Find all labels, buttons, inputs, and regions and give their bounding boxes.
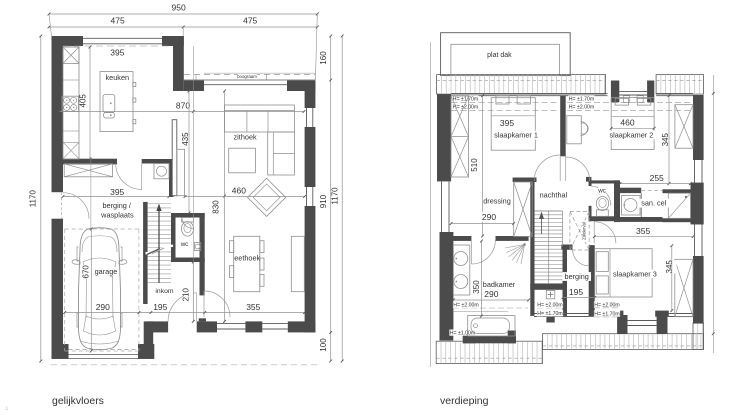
svg-text:475: 475	[111, 16, 125, 26]
svg-text:160: 160	[319, 51, 328, 65]
svg-text:H= ±1.70m: H= ±1.70m	[569, 96, 594, 102]
svg-text:435: 435	[181, 132, 190, 146]
svg-text:H= ±2.00m: H= ±2.00m	[594, 302, 619, 308]
svg-text:1170: 1170	[331, 187, 340, 205]
svg-text:gelijkvloers: gelijkvloers	[52, 395, 104, 407]
svg-text:H= ±1.00m: H= ±1.00m	[450, 330, 475, 336]
svg-text:H= ±1.70m: H= ±1.70m	[594, 311, 619, 317]
svg-text:910: 910	[319, 194, 328, 208]
svg-text:slaapkamer 2: slaapkamer 2	[609, 131, 653, 140]
svg-text:H= ±2.00m: H= ±2.00m	[453, 303, 478, 309]
svg-text:wc: wc	[597, 188, 606, 195]
svg-text:345: 345	[665, 260, 674, 274]
svg-text:460: 460	[620, 117, 634, 127]
svg-text:wasplaats: wasplaats	[100, 211, 134, 220]
svg-text:inkom: inkom	[155, 288, 173, 295]
svg-text:berging /: berging /	[102, 201, 131, 210]
svg-text:405: 405	[79, 94, 88, 108]
svg-text:boograam: boograam	[237, 74, 257, 79]
svg-text:san. cel: san. cel	[641, 199, 667, 208]
svg-text:H= ±1.70m: H= ±1.70m	[537, 311, 562, 317]
svg-text:verdieping: verdieping	[440, 395, 489, 407]
svg-text:H= ±2.00m: H= ±2.00m	[537, 303, 562, 309]
svg-text:395: 395	[110, 187, 124, 197]
svg-text:zithoek: zithoek	[234, 133, 257, 142]
svg-text:395: 395	[500, 118, 514, 128]
svg-text:nachthal: nachthal	[540, 190, 568, 199]
svg-text:1170: 1170	[29, 190, 38, 208]
svg-text:195: 195	[153, 302, 167, 312]
svg-text:950: 950	[172, 3, 186, 13]
svg-text:830: 830	[211, 200, 220, 214]
svg-text:290: 290	[96, 302, 110, 312]
svg-text:350: 350	[472, 280, 481, 294]
svg-text:290: 290	[484, 289, 498, 299]
svg-text:395: 395	[110, 48, 124, 58]
svg-text:keuken: keuken	[106, 73, 130, 82]
svg-text:870: 870	[176, 101, 190, 111]
svg-text:290: 290	[482, 212, 496, 222]
svg-text:195: 195	[569, 287, 583, 297]
svg-text:slaapkamer 3: slaapkamer 3	[613, 269, 657, 278]
svg-text:badkamer: badkamer	[483, 280, 516, 289]
svg-text:dressing: dressing	[483, 197, 511, 206]
svg-text:wc: wc	[180, 241, 189, 248]
svg-text:460: 460	[232, 186, 246, 196]
svg-text:H= ±2.00m: H= ±2.00m	[569, 104, 594, 110]
svg-text:Zolderval: Zolderval	[582, 222, 587, 240]
svg-text:355: 355	[636, 226, 650, 236]
svg-text:slaapkamer 1: slaapkamer 1	[494, 131, 538, 140]
svg-text:255: 255	[650, 173, 664, 183]
svg-text:eethoek: eethoek	[234, 254, 260, 263]
svg-text:510: 510	[470, 158, 479, 172]
svg-text:plat dak: plat dak	[487, 52, 512, 59]
svg-text:670: 670	[82, 265, 91, 279]
svg-text:garage: garage	[95, 267, 118, 276]
svg-text:210: 210	[182, 287, 191, 301]
svg-text:355: 355	[246, 302, 260, 312]
svg-text:100: 100	[319, 338, 328, 352]
svg-text:475: 475	[243, 16, 257, 26]
svg-text:berging: berging	[565, 272, 589, 281]
svg-text:H= ±1.70m: H= ±1.70m	[453, 96, 478, 102]
